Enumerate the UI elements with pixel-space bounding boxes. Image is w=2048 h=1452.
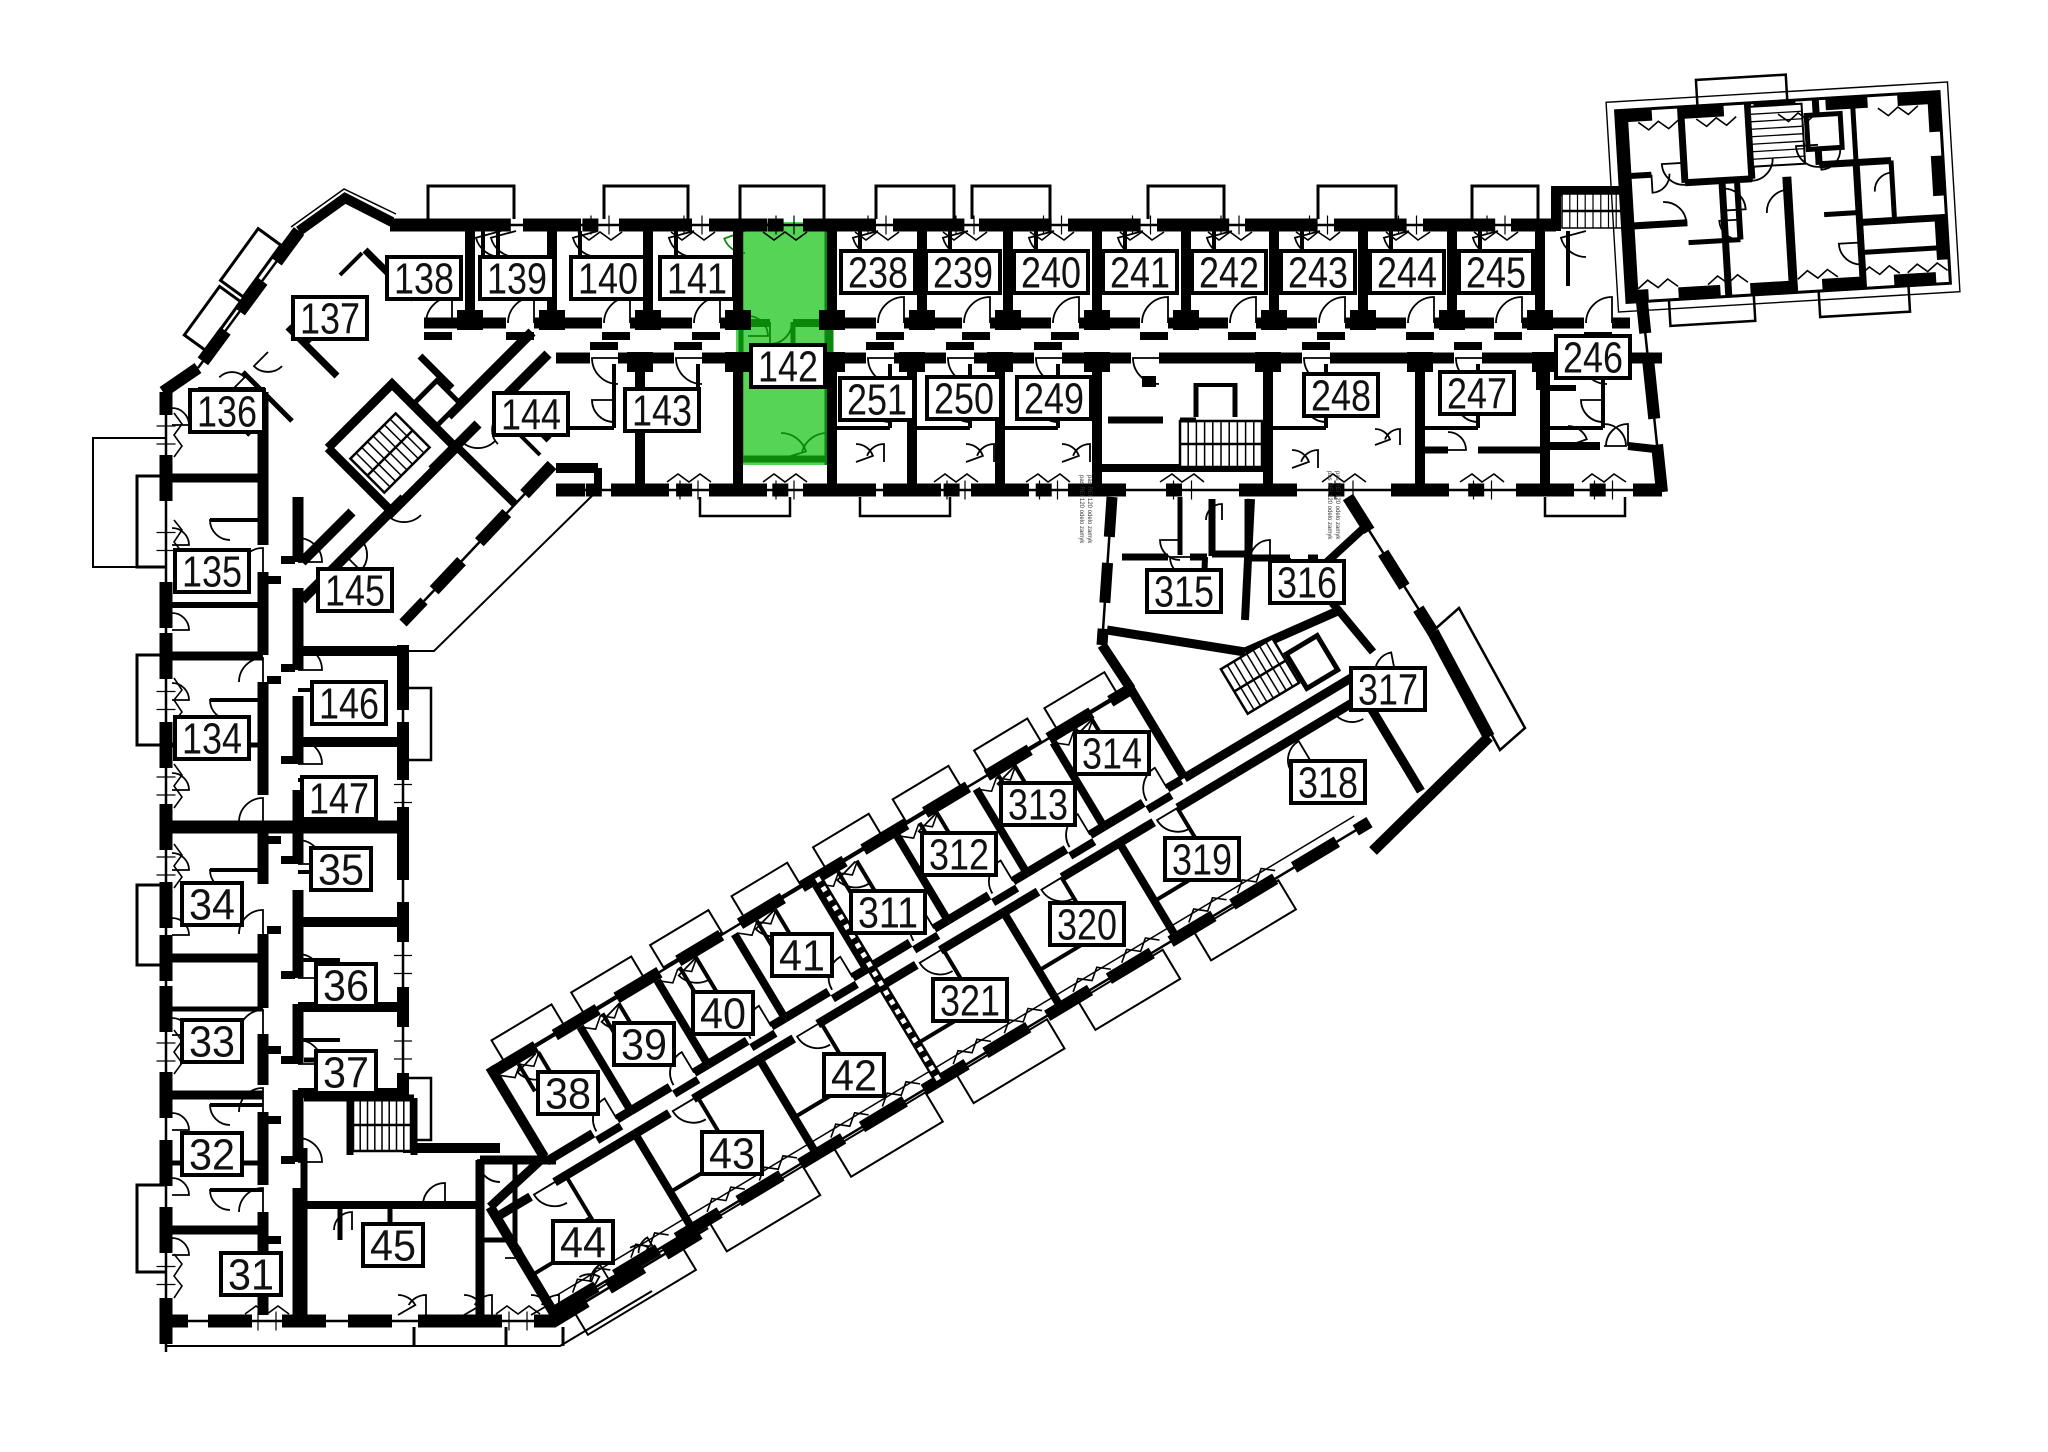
svg-text:37: 37 <box>323 1049 369 1098</box>
svg-text:34: 34 <box>189 881 235 930</box>
svg-text:139: 139 <box>487 255 547 304</box>
svg-text:321: 321 <box>940 977 1000 1026</box>
svg-text:243: 243 <box>1288 249 1348 298</box>
svg-text:317: 317 <box>1358 666 1418 715</box>
svg-text:313: 313 <box>1008 781 1068 830</box>
svg-text:137: 137 <box>300 295 360 344</box>
svg-text:319: 319 <box>1172 836 1232 885</box>
svg-text:314: 314 <box>1082 730 1142 779</box>
svg-text:140: 140 <box>578 255 638 304</box>
svg-text:pas REI 120 odelo zamyk: pas REI 120 odelo zamyk <box>1086 475 1092 544</box>
svg-text:32: 32 <box>189 1131 235 1180</box>
svg-text:249: 249 <box>1024 375 1084 424</box>
svg-text:136: 136 <box>197 388 257 437</box>
svg-text:45: 45 <box>370 1222 416 1271</box>
svg-text:40: 40 <box>700 990 746 1039</box>
svg-text:240: 240 <box>1021 249 1081 298</box>
svg-text:239: 239 <box>933 249 993 298</box>
svg-text:244: 244 <box>1377 249 1437 298</box>
svg-text:311: 311 <box>858 889 918 938</box>
svg-text:36: 36 <box>323 962 369 1011</box>
svg-text:44: 44 <box>560 1219 606 1268</box>
svg-text:142: 142 <box>758 343 818 392</box>
svg-text:147: 147 <box>309 775 369 824</box>
svg-text:316: 316 <box>1277 559 1337 608</box>
svg-text:41: 41 <box>779 932 825 981</box>
svg-text:134: 134 <box>182 715 242 764</box>
svg-text:312: 312 <box>929 831 989 880</box>
svg-text:241: 241 <box>1110 249 1170 298</box>
svg-text:144: 144 <box>501 391 561 440</box>
svg-text:245: 245 <box>1466 249 1526 298</box>
svg-text:35: 35 <box>318 846 364 895</box>
svg-text:135: 135 <box>182 548 242 597</box>
svg-text:242: 242 <box>1199 249 1259 298</box>
svg-text:318: 318 <box>1298 759 1358 808</box>
svg-text:247: 247 <box>1447 370 1507 419</box>
svg-text:315: 315 <box>1154 568 1214 617</box>
svg-text:31: 31 <box>228 1251 274 1300</box>
svg-text:320: 320 <box>1057 901 1117 950</box>
svg-text:248: 248 <box>1311 372 1371 421</box>
svg-text:138: 138 <box>394 255 454 304</box>
svg-text:43: 43 <box>709 1130 755 1179</box>
svg-text:145: 145 <box>325 567 385 616</box>
svg-text:238: 238 <box>848 249 908 298</box>
svg-text:246: 246 <box>1563 334 1623 383</box>
svg-text:39: 39 <box>621 1021 667 1070</box>
svg-text:pas REI 120 odelo zamyk: pas REI 120 odelo zamyk <box>1078 475 1084 544</box>
svg-text:251: 251 <box>847 376 907 425</box>
svg-text:38: 38 <box>545 1070 591 1119</box>
svg-text:146: 146 <box>319 680 379 729</box>
svg-text:pas REI 120 odelo zamyk: pas REI 120 odelo zamyk <box>1326 471 1332 540</box>
svg-text:250: 250 <box>934 375 994 424</box>
svg-text:pas REI 120 odelo zamyk: pas REI 120 odelo zamyk <box>1334 471 1340 540</box>
svg-text:141: 141 <box>667 255 727 304</box>
svg-text:42: 42 <box>831 1052 877 1101</box>
svg-text:143: 143 <box>632 387 692 436</box>
svg-text:33: 33 <box>189 1018 235 1067</box>
